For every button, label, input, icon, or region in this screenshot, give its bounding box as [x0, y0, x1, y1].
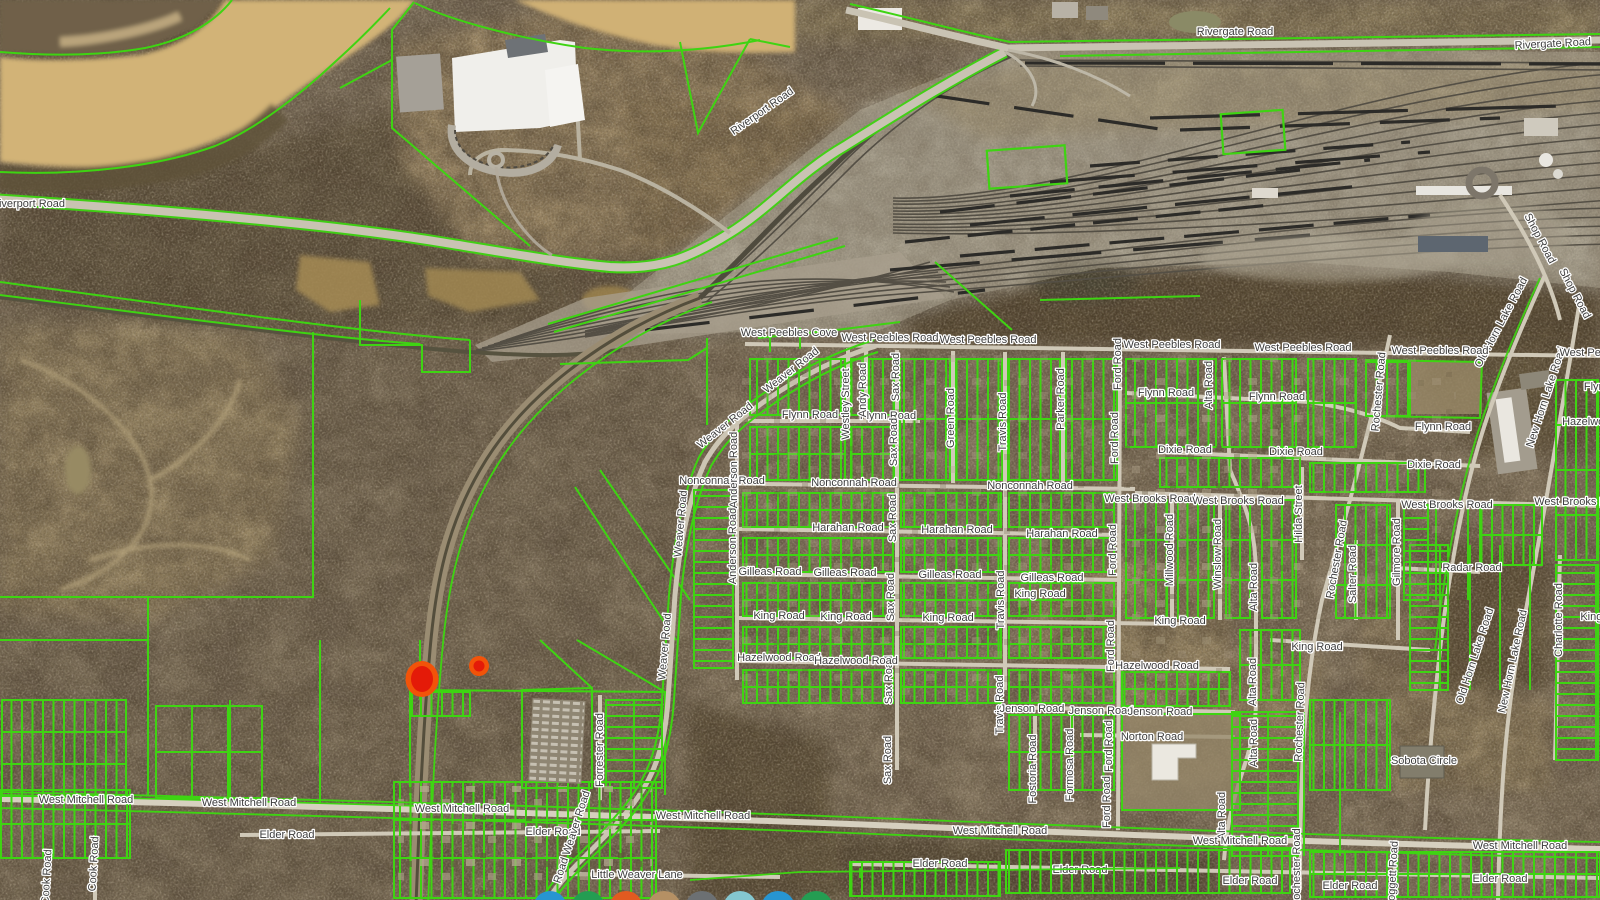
svg-text:Elder Road: Elder Road: [912, 858, 967, 870]
svg-text:Harahan Road: Harahan Road: [1026, 528, 1098, 540]
svg-text:Elder Road: Elder Road: [259, 829, 314, 841]
svg-text:Sax Road: Sax Road: [882, 736, 894, 784]
svg-text:Formosa Road: Formosa Road: [1064, 729, 1076, 802]
svg-text:West Peebles Road: West Peebles Road: [1123, 339, 1220, 351]
svg-text:West Brooks Road: West Brooks Road: [1401, 499, 1493, 511]
svg-text:West Mitchell Road: West Mitchell Road: [656, 810, 751, 822]
svg-text:Nonconnah Road: Nonconnah Road: [987, 480, 1073, 492]
svg-text:Andy Road: Andy Road: [857, 363, 869, 417]
svg-text:Flynn Road: Flynn Road: [1138, 387, 1194, 399]
svg-text:King Road: King Road: [1154, 615, 1205, 627]
svg-text:West Mitchell Road: West Mitchell Road: [202, 797, 297, 809]
svg-text:Hilda Street: Hilda Street: [1293, 485, 1305, 542]
svg-text:Gilleas Road: Gilleas Road: [919, 569, 982, 581]
svg-text:Westley Street: Westley Street: [840, 368, 852, 439]
svg-text:Ford Road: Ford Road: [1101, 776, 1113, 828]
svg-text:Harahan Road: Harahan Road: [921, 524, 993, 536]
svg-text:Jenson Road: Jenson Road: [1128, 706, 1193, 718]
svg-text:Travis Road: Travis Road: [997, 393, 1009, 452]
svg-text:Flynn Road: Flynn Road: [1415, 421, 1471, 433]
svg-text:Alta Road: Alta Road: [1203, 361, 1215, 409]
svg-text:West Peebles Road: West Peebles Road: [841, 332, 938, 344]
svg-text:Flynn Road: Flynn Road: [1584, 381, 1600, 393]
svg-text:Harahan Road: Harahan Road: [812, 522, 884, 534]
svg-text:Dixie Road: Dixie Road: [1407, 459, 1461, 471]
svg-text:Sax Road: Sax Road: [885, 573, 897, 621]
svg-text:Dixie Road: Dixie Road: [1158, 444, 1212, 456]
svg-text:Hazelwood Road: Hazelwood Road: [814, 655, 898, 667]
svg-text:Gilmore Road: Gilmore Road: [1391, 518, 1403, 586]
svg-text:Hazelwood Road: Hazelwood Road: [1562, 416, 1600, 428]
svg-text:King Road: King Road: [820, 611, 871, 623]
svg-text:Forrester Road: Forrester Road: [594, 713, 606, 787]
svg-text:Hazelwood Road: Hazelwood Road: [737, 652, 821, 664]
svg-text:King Road: King Road: [922, 612, 973, 624]
svg-text:Winslow Road: Winslow Road: [1212, 519, 1224, 589]
svg-text:Sax Road: Sax Road: [887, 494, 899, 542]
svg-text:Flynn Road: Flynn Road: [782, 409, 838, 421]
svg-text:West Mitchell Road: West Mitchell Road: [953, 825, 1048, 837]
svg-text:West Mitchell Road: West Mitchell Road: [1473, 840, 1568, 852]
svg-text:Fostoria Road: Fostoria Road: [1027, 734, 1039, 803]
svg-text:Alta Road: Alta Road: [1248, 719, 1260, 767]
svg-text:Sobota Circle: Sobota Circle: [1391, 755, 1457, 767]
svg-text:Hazelwood Road: Hazelwood Road: [1115, 660, 1199, 672]
svg-text:West Peebles Cove: West Peebles Cove: [741, 327, 837, 339]
svg-text:West Mitchell Road: West Mitchell Road: [415, 803, 510, 815]
svg-text:Gilleas Road: Gilleas Road: [1021, 572, 1084, 584]
svg-text:Radar Road: Radar Road: [1442, 562, 1501, 574]
svg-text:King Road: King Road: [1014, 588, 1065, 600]
svg-text:Riverport Road: Riverport Road: [0, 198, 65, 210]
svg-text:Flynn Road: Flynn Road: [1249, 391, 1305, 403]
svg-text:King Road: King Road: [1291, 641, 1342, 653]
svg-text:West Brooks Road: West Brooks Road: [1534, 496, 1600, 508]
svg-text:Ford Road: Ford Road: [1112, 338, 1124, 390]
svg-text:Anderson Road: Anderson Road: [728, 432, 740, 508]
svg-text:West Mitchell Road: West Mitchell Road: [1193, 835, 1288, 847]
svg-text:Alta Road: Alta Road: [1248, 563, 1260, 611]
svg-text:Jenson Road: Jenson Road: [1069, 705, 1134, 717]
svg-text:Elder Road: Elder Road: [1472, 873, 1527, 885]
svg-text:Ford Road: Ford Road: [1107, 524, 1119, 576]
svg-text:Ford Road: Ford Road: [1103, 720, 1115, 772]
svg-text:Ford Road: Ford Road: [1109, 412, 1121, 464]
svg-text:Norton Road: Norton Road: [1121, 731, 1183, 743]
svg-text:West Peebles Road: West Peebles Road: [1559, 347, 1600, 359]
svg-text:King Road: King Road: [753, 610, 804, 622]
svg-text:Salter Road: Salter Road: [1347, 545, 1359, 603]
svg-text:Rochester Road: Rochester Road: [1291, 828, 1303, 900]
svg-text:Alta Road: Alta Road: [1216, 792, 1228, 840]
svg-text:Elder Road: Elder Road: [1322, 880, 1377, 892]
svg-text:Gilleas Road: Gilleas Road: [739, 566, 802, 578]
svg-text:Nonconnah Road: Nonconnah Road: [679, 475, 765, 487]
svg-text:West Peebles Road: West Peebles Road: [1391, 345, 1488, 357]
svg-text:Anderson Road: Anderson Road: [727, 508, 739, 584]
svg-text:Gilleas Road: Gilleas Road: [814, 567, 877, 579]
svg-text:Millwood Road: Millwood Road: [1164, 514, 1176, 586]
svg-text:Jenson Road: Jenson Road: [1000, 703, 1065, 715]
svg-text:Dixie Road: Dixie Road: [1269, 446, 1323, 458]
svg-text:West Mitchell Road: West Mitchell Road: [39, 794, 134, 806]
svg-text:Alta Road: Alta Road: [1247, 658, 1259, 706]
svg-text:West Peebles Road: West Peebles Road: [939, 334, 1036, 346]
svg-text:Rivergate Road: Rivergate Road: [1197, 26, 1273, 38]
svg-text:West Brooks Road: West Brooks Road: [1104, 493, 1196, 505]
svg-text:Parker Road: Parker Road: [1055, 368, 1067, 430]
svg-text:Green Road: Green Road: [945, 388, 957, 448]
svg-text:Charlotte Road: Charlotte Road: [1553, 583, 1565, 657]
svg-text:Sax Road: Sax Road: [888, 418, 900, 466]
svg-text:West Peebles Road: West Peebles Road: [1254, 342, 1351, 354]
svg-text:Sax Road: Sax Road: [890, 353, 902, 401]
svg-text:West Brooks Road: West Brooks Road: [1192, 495, 1284, 507]
svg-text:Travis Road: Travis Road: [995, 571, 1007, 630]
svg-text:Elder Road: Elder Road: [1222, 875, 1277, 887]
svg-text:King Road: King Road: [1580, 611, 1600, 623]
svg-text:Little Weaver Lane: Little Weaver Lane: [591, 869, 683, 881]
svg-text:Nonconnah Road: Nonconnah Road: [811, 477, 897, 489]
